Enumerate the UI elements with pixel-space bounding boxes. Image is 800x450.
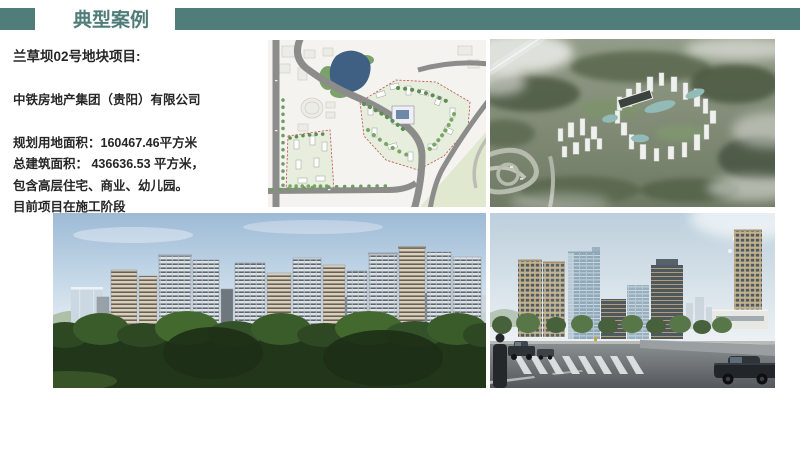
header-accent-left bbox=[0, 8, 35, 30]
header-accent-bar bbox=[175, 8, 800, 30]
project-name-line: 兰草坝02号地块项目: bbox=[13, 45, 141, 65]
project-company-line: 中铁房地产集团（贵阳）有限公司 bbox=[13, 89, 201, 108]
project-contents-line: 包含高层住宅、商业、幼儿园。 bbox=[13, 175, 188, 194]
page-title: 典型案例 bbox=[48, 5, 174, 32]
aerial-render-image bbox=[490, 39, 775, 207]
project-floor-area-line: 总建筑面积： 436636.53 平方米， bbox=[13, 153, 204, 172]
skyline-render-image bbox=[53, 213, 486, 388]
street-render-image bbox=[490, 213, 775, 388]
site-plan-image bbox=[268, 40, 486, 207]
project-land-area-line: 规划用地面积：160467.46平方米 bbox=[13, 132, 197, 151]
slide-canvas: 典型案例 兰草坝02号地块项目: 中铁房地产集团（贵阳）有限公司 规划用地面积：… bbox=[0, 0, 800, 450]
